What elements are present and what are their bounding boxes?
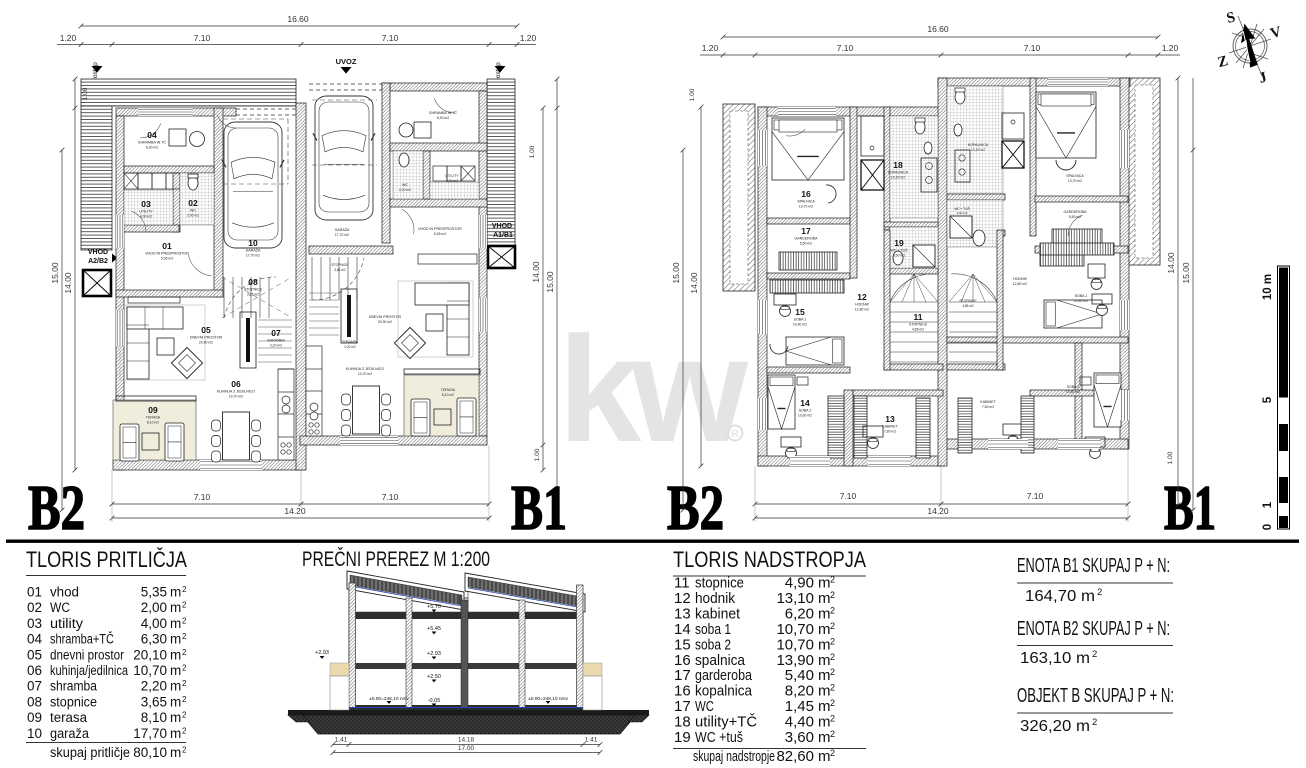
svg-text:m: m bbox=[818, 621, 831, 638]
svg-text:A2/B2: A2/B2 bbox=[88, 258, 108, 265]
svg-text:17,70 m2: 17,70 m2 bbox=[246, 254, 260, 258]
svg-text:GARAŽA: GARAŽA bbox=[335, 227, 350, 232]
svg-text:2: 2 bbox=[830, 729, 835, 739]
svg-text:hodnik: hodnik bbox=[695, 590, 735, 607]
svg-text:15.00: 15.00 bbox=[545, 271, 555, 293]
svg-text:13: 13 bbox=[885, 414, 895, 424]
svg-text:12: 12 bbox=[857, 292, 867, 302]
svg-text:dnevni prostor: dnevni prostor bbox=[50, 647, 124, 662]
svg-text:2: 2 bbox=[1097, 587, 1102, 598]
svg-text:SHRAMBA: SHRAMBA bbox=[342, 340, 359, 344]
svg-text:7.10: 7.10 bbox=[194, 492, 211, 502]
svg-text:17.00: 17.00 bbox=[458, 745, 475, 752]
svg-text:19: 19 bbox=[674, 729, 691, 746]
svg-text:SOBA 1: SOBA 1 bbox=[794, 318, 807, 322]
svg-text:164,70 m: 164,70 m bbox=[1025, 588, 1095, 605]
svg-text:16: 16 bbox=[674, 652, 691, 669]
svg-text:80,10: 80,10 bbox=[133, 745, 167, 760]
svg-text:1.20: 1.20 bbox=[520, 33, 537, 43]
svg-text:09: 09 bbox=[148, 405, 158, 415]
svg-text:04: 04 bbox=[147, 130, 157, 140]
svg-text:13,90: 13,90 bbox=[776, 652, 814, 669]
svg-text:3,60 m2: 3,60 m2 bbox=[893, 254, 905, 258]
svg-text:skupaj nadstropje: skupaj nadstropje bbox=[693, 748, 775, 765]
svg-text:soba 1: soba 1 bbox=[695, 621, 731, 638]
svg-text:03: 03 bbox=[27, 616, 42, 631]
svg-text:A1/B1: A1/B1 bbox=[493, 232, 513, 239]
svg-text:+2.93: +2.93 bbox=[427, 651, 441, 657]
svg-text:163,10 m: 163,10 m bbox=[1020, 650, 1090, 667]
svg-text:14.00: 14.00 bbox=[1166, 252, 1176, 274]
svg-text:17: 17 bbox=[674, 667, 691, 684]
svg-text:4,00 m2: 4,00 m2 bbox=[140, 215, 152, 219]
svg-text:m: m bbox=[818, 590, 831, 607]
svg-text:WC: WC bbox=[50, 600, 70, 615]
svg-text:KUHINJA Z JEDILNICO: KUHINJA Z JEDILNICO bbox=[346, 367, 384, 371]
svg-text:2,20 m2: 2,20 m2 bbox=[270, 344, 282, 348]
svg-text:m: m bbox=[170, 585, 181, 600]
svg-text:1.20: 1.20 bbox=[702, 43, 719, 53]
svg-text:11: 11 bbox=[914, 312, 923, 322]
svg-text:7.10: 7.10 bbox=[1024, 43, 1041, 53]
svg-text:05: 05 bbox=[27, 647, 42, 662]
svg-text:m: m bbox=[818, 683, 831, 700]
svg-text:14.18: 14.18 bbox=[458, 737, 475, 744]
svg-text:10,40 m2: 10,40 m2 bbox=[1074, 299, 1088, 303]
svg-text:2: 2 bbox=[182, 679, 187, 688]
svg-text:3,65 m2: 3,65 m2 bbox=[334, 268, 346, 272]
svg-text:2,00 m2: 2,00 m2 bbox=[187, 214, 199, 218]
svg-text:2: 2 bbox=[830, 748, 835, 758]
svg-text:garderoba: garderoba bbox=[695, 667, 753, 684]
svg-text:shramba+TČ: shramba+TČ bbox=[50, 632, 114, 647]
svg-text:19: 19 bbox=[894, 238, 904, 248]
svg-text:m: m bbox=[170, 647, 181, 662]
svg-text:UVOZ: UVOZ bbox=[336, 57, 357, 66]
svg-text:1.41: 1.41 bbox=[585, 737, 598, 744]
svg-text:WC + TUŠ: WC + TUŠ bbox=[890, 248, 908, 253]
svg-text:8,10: 8,10 bbox=[141, 710, 167, 725]
svg-text:m: m bbox=[818, 748, 831, 765]
svg-text:kuhinja/jedilnica: kuhinja/jedilnica bbox=[50, 663, 128, 678]
svg-text:20,10: 20,10 bbox=[133, 647, 167, 662]
svg-text:10,40 m2: 10,40 m2 bbox=[793, 323, 807, 327]
svg-text:SOBA 2: SOBA 2 bbox=[799, 409, 812, 413]
svg-text:GARAŽA: GARAŽA bbox=[246, 248, 261, 253]
svg-text:7.10: 7.10 bbox=[1027, 491, 1044, 501]
svg-text:2: 2 bbox=[182, 616, 187, 625]
svg-text:5,35 m2: 5,35 m2 bbox=[434, 232, 446, 236]
svg-text:R: R bbox=[731, 429, 738, 440]
svg-text:DNEVNI PROSTOR: DNEVNI PROSTOR bbox=[369, 315, 402, 319]
svg-text:7.10: 7.10 bbox=[382, 33, 399, 43]
svg-text:STOPNICE: STOPNICE bbox=[244, 288, 263, 292]
svg-text:WC: WC bbox=[402, 183, 408, 187]
svg-text:2: 2 bbox=[830, 636, 835, 646]
svg-text:6,30 m2: 6,30 m2 bbox=[437, 116, 449, 120]
svg-text:7.10: 7.10 bbox=[837, 43, 854, 53]
svg-text:1: 1 bbox=[1262, 501, 1274, 508]
svg-text:16: 16 bbox=[674, 683, 691, 700]
svg-text:STOPNICE: STOPNICE bbox=[331, 263, 349, 267]
svg-text:PREČNI PREREZ M 1:200: PREČNI PREREZ M 1:200 bbox=[302, 548, 490, 571]
svg-text:VHOD IN PREDPROSTOR: VHOD IN PREDPROSTOR bbox=[418, 227, 462, 231]
svg-text:m: m bbox=[818, 714, 831, 731]
svg-text:11: 11 bbox=[674, 575, 690, 592]
svg-text:02: 02 bbox=[188, 198, 198, 208]
svg-text:VHOD: VHOD bbox=[492, 223, 512, 230]
svg-text:06: 06 bbox=[27, 663, 42, 678]
svg-text:7.10: 7.10 bbox=[194, 33, 211, 43]
svg-text:shramba: shramba bbox=[50, 679, 97, 694]
svg-text:KOPALNICA: KOPALNICA bbox=[968, 143, 989, 147]
svg-text:13: 13 bbox=[674, 605, 691, 622]
svg-text:3,65: 3,65 bbox=[141, 694, 167, 709]
svg-text:10 m: 10 m bbox=[1262, 274, 1274, 300]
svg-text:2: 2 bbox=[1092, 649, 1097, 660]
svg-text:m: m bbox=[818, 729, 831, 746]
svg-text:UTILITY: UTILITY bbox=[445, 174, 459, 178]
svg-text:4,85 m2: 4,85 m2 bbox=[912, 328, 924, 332]
svg-text:1,45: 1,45 bbox=[785, 698, 814, 715]
svg-text:10,70 m2: 10,70 m2 bbox=[358, 372, 372, 376]
svg-text:TLORIS PRITLIČJA: TLORIS PRITLIČJA bbox=[26, 547, 187, 572]
svg-text:DNEVNI PROSTOR: DNEVNI PROSTOR bbox=[190, 336, 223, 340]
svg-text:08: 08 bbox=[27, 694, 42, 709]
svg-text:2,00 m2: 2,00 m2 bbox=[399, 188, 411, 192]
svg-text:stopnice: stopnice bbox=[695, 575, 744, 592]
svg-text:utility+TČ: utility+TČ bbox=[695, 714, 757, 731]
svg-text:SPALNICA: SPALNICA bbox=[797, 200, 815, 204]
svg-text:+2.93: +2.93 bbox=[315, 650, 329, 656]
svg-text:m: m bbox=[170, 663, 181, 678]
svg-text:5,35 m2: 5,35 m2 bbox=[161, 257, 173, 261]
svg-text:B2: B2 bbox=[667, 472, 724, 543]
svg-text:10,20 m2: 10,20 m2 bbox=[891, 176, 905, 180]
svg-text:5,50 m2: 5,50 m2 bbox=[800, 242, 812, 246]
svg-text:10,70: 10,70 bbox=[776, 621, 814, 638]
svg-text:82,60: 82,60 bbox=[776, 748, 814, 765]
svg-text:4,85 m2: 4,85 m2 bbox=[962, 304, 974, 308]
svg-text:B2: B2 bbox=[28, 472, 85, 543]
svg-text:05: 05 bbox=[201, 325, 211, 335]
svg-text:m: m bbox=[170, 745, 181, 760]
svg-text:14.20: 14.20 bbox=[927, 506, 949, 516]
svg-text:1.20: 1.20 bbox=[60, 33, 77, 43]
svg-text:2,00: 2,00 bbox=[141, 600, 167, 615]
svg-text:14.00: 14.00 bbox=[63, 272, 73, 294]
svg-text:GARDEROBA: GARDEROBA bbox=[795, 237, 819, 241]
svg-text:m: m bbox=[818, 636, 831, 653]
svg-text:16.60: 16.60 bbox=[927, 24, 949, 34]
svg-text:WC +tuš: WC +tuš bbox=[695, 729, 743, 746]
svg-text:garaža: garaža bbox=[50, 726, 89, 741]
svg-text:7.10: 7.10 bbox=[840, 491, 857, 501]
svg-text:B1: B1 bbox=[1164, 472, 1216, 543]
svg-text:08: 08 bbox=[248, 277, 258, 287]
svg-text:HODNIK: HODNIK bbox=[855, 303, 870, 307]
svg-text:18: 18 bbox=[893, 160, 903, 170]
svg-text:2: 2 bbox=[182, 632, 187, 641]
svg-text:m: m bbox=[170, 616, 181, 631]
svg-text:20,90 m2: 20,90 m2 bbox=[378, 320, 392, 324]
svg-text:GARDEROBA: GARDEROBA bbox=[1064, 210, 1088, 214]
svg-text:KABINET: KABINET bbox=[980, 400, 996, 404]
svg-text:14: 14 bbox=[800, 398, 810, 408]
svg-text:SHRAMBA IN TČ: SHRAMBA IN TČ bbox=[429, 110, 457, 115]
svg-text:2: 2 bbox=[830, 698, 835, 708]
svg-text:2: 2 bbox=[830, 590, 835, 600]
svg-text:2,20 m2: 2,20 m2 bbox=[344, 345, 356, 349]
svg-text:SPALNICA: SPALNICA bbox=[1066, 174, 1084, 178]
svg-text:10,60 m2: 10,60 m2 bbox=[798, 414, 812, 418]
svg-text:2: 2 bbox=[1092, 717, 1097, 728]
svg-text:m: m bbox=[818, 652, 831, 669]
svg-text:8,20: 8,20 bbox=[785, 683, 814, 700]
svg-text:kabinet: kabinet bbox=[695, 605, 741, 622]
svg-text:VHOD: VHOD bbox=[88, 249, 108, 256]
svg-text:2: 2 bbox=[830, 605, 835, 615]
svg-text:14.20: 14.20 bbox=[284, 506, 306, 516]
svg-text:10: 10 bbox=[27, 726, 42, 741]
svg-text:4,90: 4,90 bbox=[785, 575, 814, 592]
svg-text:12,80 m2: 12,80 m2 bbox=[1013, 282, 1027, 286]
svg-text:4,40: 4,40 bbox=[785, 714, 814, 731]
svg-text:SOBA 1: SOBA 1 bbox=[1075, 294, 1088, 298]
svg-text:09: 09 bbox=[27, 710, 42, 725]
svg-text:5,35: 5,35 bbox=[141, 585, 167, 600]
svg-text:20,90 m2: 20,90 m2 bbox=[199, 341, 213, 345]
svg-text:soba 2: soba 2 bbox=[695, 636, 731, 653]
svg-text:m: m bbox=[170, 726, 181, 741]
svg-text:6,20: 6,20 bbox=[785, 605, 814, 622]
svg-text:14.00: 14.00 bbox=[689, 272, 699, 294]
svg-text:m: m bbox=[170, 710, 181, 725]
svg-text:2: 2 bbox=[182, 648, 187, 657]
svg-text:2: 2 bbox=[830, 575, 835, 585]
svg-text:0: 0 bbox=[1262, 524, 1274, 530]
svg-text:7.10: 7.10 bbox=[382, 492, 399, 502]
svg-text:TERASA: TERASA bbox=[441, 388, 456, 392]
svg-text:kopalnica: kopalnica bbox=[695, 683, 753, 700]
svg-text:1.20: 1.20 bbox=[1162, 43, 1179, 53]
svg-text:10,70: 10,70 bbox=[776, 636, 814, 653]
svg-text:16: 16 bbox=[801, 189, 811, 199]
svg-text:03: 03 bbox=[141, 199, 151, 209]
svg-text:3,65 m2: 3,65 m2 bbox=[247, 293, 259, 297]
svg-text:7,80 m2: 7,80 m2 bbox=[884, 430, 896, 434]
svg-text:1.00: 1.00 bbox=[1167, 451, 1174, 464]
svg-text:2: 2 bbox=[182, 601, 187, 610]
svg-text:14: 14 bbox=[674, 621, 691, 638]
svg-text:vhod: vhod bbox=[50, 585, 79, 600]
svg-text:4,00: 4,00 bbox=[141, 616, 167, 631]
svg-text:m: m bbox=[170, 600, 181, 615]
svg-text:1.00: 1.00 bbox=[689, 88, 696, 101]
svg-text:12: 12 bbox=[674, 590, 691, 607]
svg-text:+5.45: +5.45 bbox=[427, 626, 441, 632]
svg-text:KOPALNICA: KOPALNICA bbox=[888, 171, 909, 175]
svg-text:kw: kw bbox=[558, 305, 748, 473]
svg-text:07: 07 bbox=[27, 679, 42, 694]
svg-text:10,20 m2: 10,20 m2 bbox=[971, 148, 985, 152]
svg-text:14.00: 14.00 bbox=[531, 261, 541, 283]
svg-text:m: m bbox=[170, 632, 181, 647]
svg-text:4,00 m2: 4,00 m2 bbox=[446, 179, 458, 183]
svg-text:OBJEKT B SKUPAJ P + N:: OBJEKT B SKUPAJ P + N: bbox=[1017, 684, 1174, 707]
svg-text:12,80 m2: 12,80 m2 bbox=[855, 308, 869, 312]
svg-text:2,20: 2,20 bbox=[141, 679, 167, 694]
svg-text:KABINET: KABINET bbox=[882, 425, 898, 429]
svg-text:2: 2 bbox=[182, 585, 187, 594]
svg-text:UTILITY: UTILITY bbox=[139, 210, 153, 214]
svg-text:326,20 m: 326,20 m bbox=[1020, 718, 1090, 735]
svg-text:6,30 m2: 6,30 m2 bbox=[146, 146, 158, 150]
svg-text:13,70 m2: 13,70 m2 bbox=[1068, 179, 1082, 183]
svg-text:WC: WC bbox=[190, 209, 196, 213]
svg-text:15: 15 bbox=[674, 636, 691, 653]
svg-text:2: 2 bbox=[182, 664, 187, 673]
svg-text:ENOTA B1 SKUPAJ P + N:: ENOTA B1 SKUPAJ P + N: bbox=[1017, 554, 1170, 577]
svg-text:10,70: 10,70 bbox=[133, 663, 167, 678]
svg-text:+2.50: +2.50 bbox=[427, 674, 441, 680]
svg-text:2: 2 bbox=[830, 667, 835, 677]
svg-text:8,10 m2: 8,10 m2 bbox=[442, 393, 454, 397]
svg-text:7,80 m2: 7,80 m2 bbox=[982, 405, 994, 409]
svg-text:15: 15 bbox=[795, 307, 805, 317]
svg-text:01: 01 bbox=[27, 585, 42, 600]
svg-text:13,10: 13,10 bbox=[776, 590, 814, 607]
svg-text:8,10 m2: 8,10 m2 bbox=[147, 421, 159, 425]
svg-text:2: 2 bbox=[830, 621, 835, 631]
svg-text:HODNIK: HODNIK bbox=[1013, 277, 1028, 281]
svg-text:m: m bbox=[818, 605, 831, 622]
svg-text:5,40: 5,40 bbox=[785, 667, 814, 684]
svg-text:17,70: 17,70 bbox=[133, 726, 167, 741]
svg-text:m: m bbox=[818, 667, 831, 684]
svg-text:KUHINJA Z JEDILNICO: KUHINJA Z JEDILNICO bbox=[217, 390, 255, 394]
svg-text:5: 5 bbox=[1262, 396, 1274, 403]
svg-text:15.00: 15.00 bbox=[50, 262, 60, 284]
svg-text:ENOTA B2 SKUPAJ P + N:: ENOTA B2 SKUPAJ P + N: bbox=[1017, 617, 1170, 640]
svg-text:2: 2 bbox=[830, 714, 835, 724]
svg-text:15.00: 15.00 bbox=[671, 262, 681, 284]
svg-text:2: 2 bbox=[182, 695, 187, 704]
svg-text:17: 17 bbox=[674, 698, 691, 715]
svg-text:VHOD IN PREDPROSTOR: VHOD IN PREDPROSTOR bbox=[145, 252, 189, 256]
svg-text:06: 06 bbox=[231, 379, 241, 389]
svg-text:TLORIS NADSTROPJA: TLORIS NADSTROPJA bbox=[673, 547, 866, 572]
svg-text:2: 2 bbox=[182, 726, 187, 735]
svg-text:17,70 m2: 17,70 m2 bbox=[335, 233, 349, 237]
svg-text:2: 2 bbox=[830, 652, 835, 662]
svg-text:3,60: 3,60 bbox=[785, 729, 814, 746]
svg-text:STOPNICE: STOPNICE bbox=[909, 323, 928, 327]
svg-text:2: 2 bbox=[830, 683, 835, 693]
svg-text:SOBA 2: SOBA 2 bbox=[1067, 385, 1080, 389]
svg-text:2: 2 bbox=[182, 746, 187, 755]
svg-text:STOPNICE: STOPNICE bbox=[959, 299, 977, 303]
svg-text:13,70 m2: 13,70 m2 bbox=[799, 205, 813, 209]
svg-text:15.00: 15.00 bbox=[1181, 262, 1191, 284]
svg-text:10,70 m2: 10,70 m2 bbox=[229, 395, 243, 399]
svg-text:01: 01 bbox=[162, 241, 172, 251]
svg-text:m: m bbox=[170, 694, 181, 709]
svg-text:utility: utility bbox=[50, 616, 83, 631]
svg-text:m: m bbox=[818, 698, 831, 715]
svg-text:3,60 m2: 3,60 m2 bbox=[957, 211, 968, 215]
svg-text:WC: WC bbox=[695, 698, 714, 715]
svg-text:10,60 m2: 10,60 m2 bbox=[1066, 390, 1080, 394]
svg-text:TERASA: TERASA bbox=[146, 416, 161, 420]
svg-text:10: 10 bbox=[248, 238, 258, 248]
svg-text:07: 07 bbox=[271, 328, 281, 338]
svg-text:SHRAMBA IN TČ: SHRAMBA IN TČ bbox=[138, 140, 166, 145]
svg-text:16.60: 16.60 bbox=[287, 14, 309, 24]
svg-text:stopnice: stopnice bbox=[50, 694, 97, 709]
svg-text:02: 02 bbox=[27, 600, 42, 615]
svg-text:2: 2 bbox=[182, 711, 187, 720]
svg-text:6,30: 6,30 bbox=[141, 632, 167, 647]
svg-text:B1: B1 bbox=[511, 472, 567, 543]
svg-text:SHRAMBA: SHRAMBA bbox=[267, 339, 285, 343]
svg-text:spalnica: spalnica bbox=[695, 652, 746, 669]
svg-text:terasa: terasa bbox=[50, 710, 87, 725]
svg-text:1.00: 1.00 bbox=[529, 145, 536, 158]
svg-text:1.00: 1.00 bbox=[82, 87, 89, 100]
svg-text:1.00: 1.00 bbox=[534, 448, 541, 461]
svg-text:m: m bbox=[170, 679, 181, 694]
svg-text:m: m bbox=[818, 575, 831, 592]
svg-text:18: 18 bbox=[674, 714, 691, 731]
svg-text:-0.05: -0.05 bbox=[428, 698, 441, 704]
svg-text:1.41: 1.41 bbox=[335, 737, 348, 744]
svg-text:17: 17 bbox=[801, 226, 811, 236]
svg-text:+5.70: +5.70 bbox=[427, 604, 441, 610]
svg-text:skupaj pritličje: skupaj pritličje bbox=[50, 745, 130, 760]
svg-text:04: 04 bbox=[27, 632, 43, 647]
